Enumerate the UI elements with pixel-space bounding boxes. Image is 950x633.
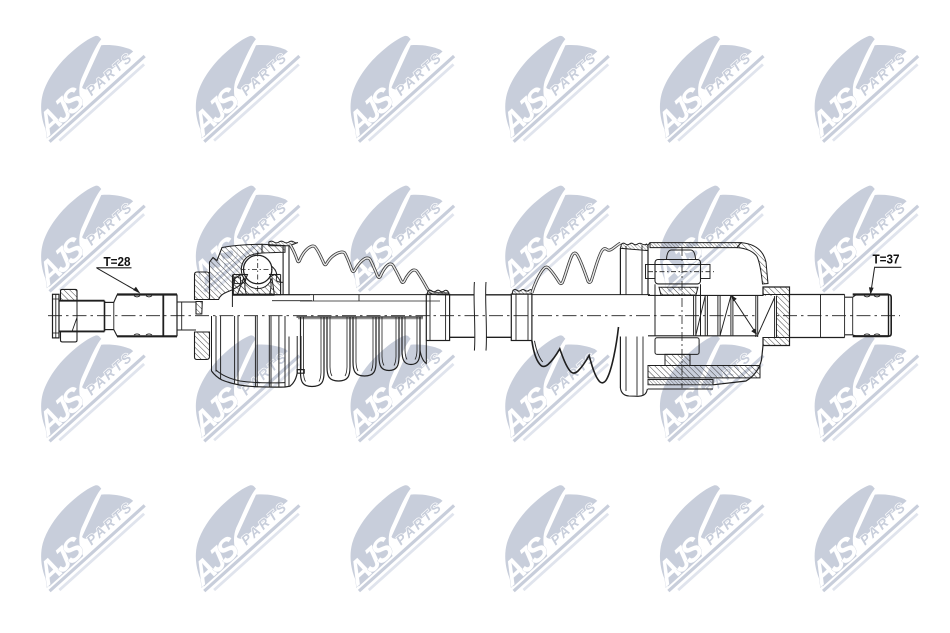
svg-text:T=28: T=28 bbox=[104, 254, 131, 269]
svg-text:T=37: T=37 bbox=[873, 252, 900, 267]
